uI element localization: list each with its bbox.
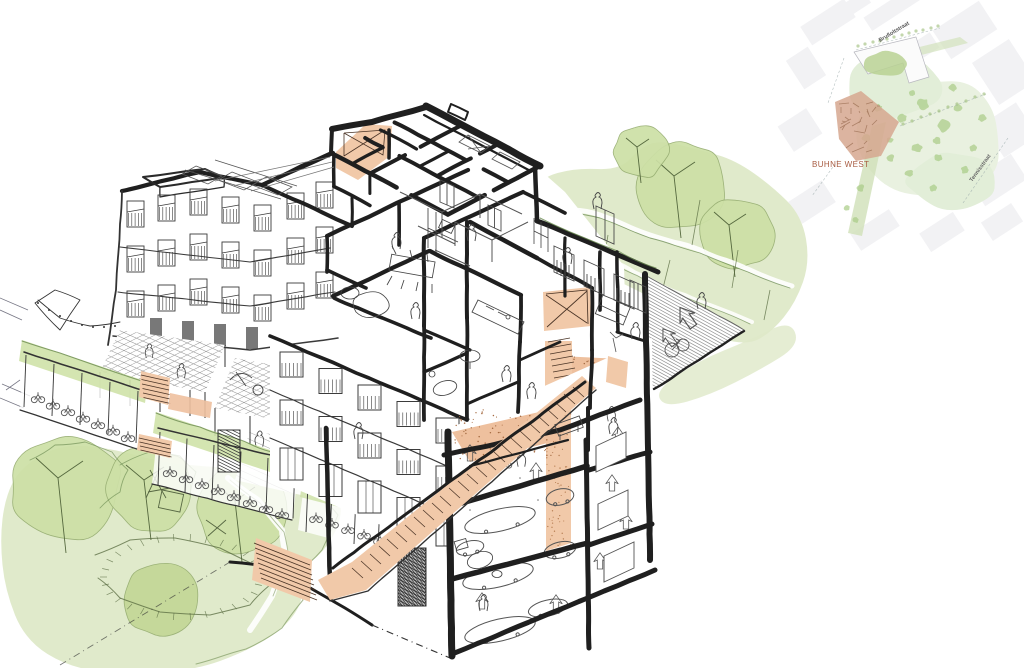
- svg-text:BUHNE WEST: BUHNE WEST: [812, 160, 869, 169]
